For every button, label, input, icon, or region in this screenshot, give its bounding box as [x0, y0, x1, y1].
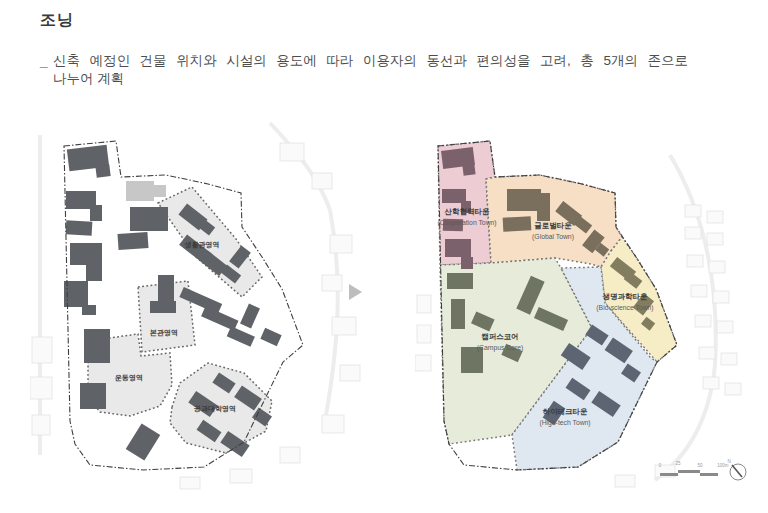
- main-hall-area-label: 본관영역: [150, 329, 178, 337]
- north-label: N: [727, 459, 730, 464]
- campus-core-label-kr: 캠퍼스코어: [481, 332, 519, 341]
- intro-line-2: 나누어 계획: [53, 70, 688, 88]
- existing-campus-map: 생활관영역 본관영역 운동영역 공과대학영역: [30, 115, 375, 505]
- page-title: 조닝: [40, 10, 74, 31]
- high-tech-town-label-en: (High-tech Town): [539, 419, 590, 427]
- bio-science-town-label-en: (Bio-science Town): [596, 304, 653, 312]
- right-arrow-icon: [349, 284, 362, 300]
- cooperation-town-label-kr: 산학협력타운: [444, 207, 491, 216]
- bio-science-town-label-kr: 생명과학타운: [602, 292, 649, 301]
- north-arrow-icon: N: [727, 459, 746, 480]
- bullet-marker: _: [40, 52, 53, 88]
- left-map-light-buildings: [126, 181, 166, 201]
- scale-tick-50: 50: [697, 463, 703, 468]
- global-town-label-kr: 글로벌타운: [534, 221, 572, 230]
- zoning-plan-map: 산학협력타운 (Cooperation Town) 글로벌타운 (Global …: [415, 115, 768, 505]
- scale-tick-25: 25: [675, 461, 681, 466]
- cooperation-town-label-en: (Cooperation Town): [437, 219, 496, 227]
- high-tech-town-label-kr: 하이테크타운: [543, 407, 589, 416]
- intro-text: _ 신축 예정인 건물 위치와 시설의 용도에 따라 이용자의 동선과 편의성을…: [40, 52, 688, 88]
- dorm-area-label: 생활관영역: [184, 241, 220, 249]
- global-town-label-en: (Global Town): [532, 233, 574, 241]
- sports-area-label: 운동영역: [115, 374, 143, 382]
- engineering-area-label: 공과대학영역: [194, 405, 236, 413]
- intro-line-1: 신축 예정인 건물 위치와 시설의 용도에 따라 이용자의 동선과 편의성을 고…: [53, 52, 688, 70]
- campus-core-label-en: (Campus Core): [477, 344, 523, 352]
